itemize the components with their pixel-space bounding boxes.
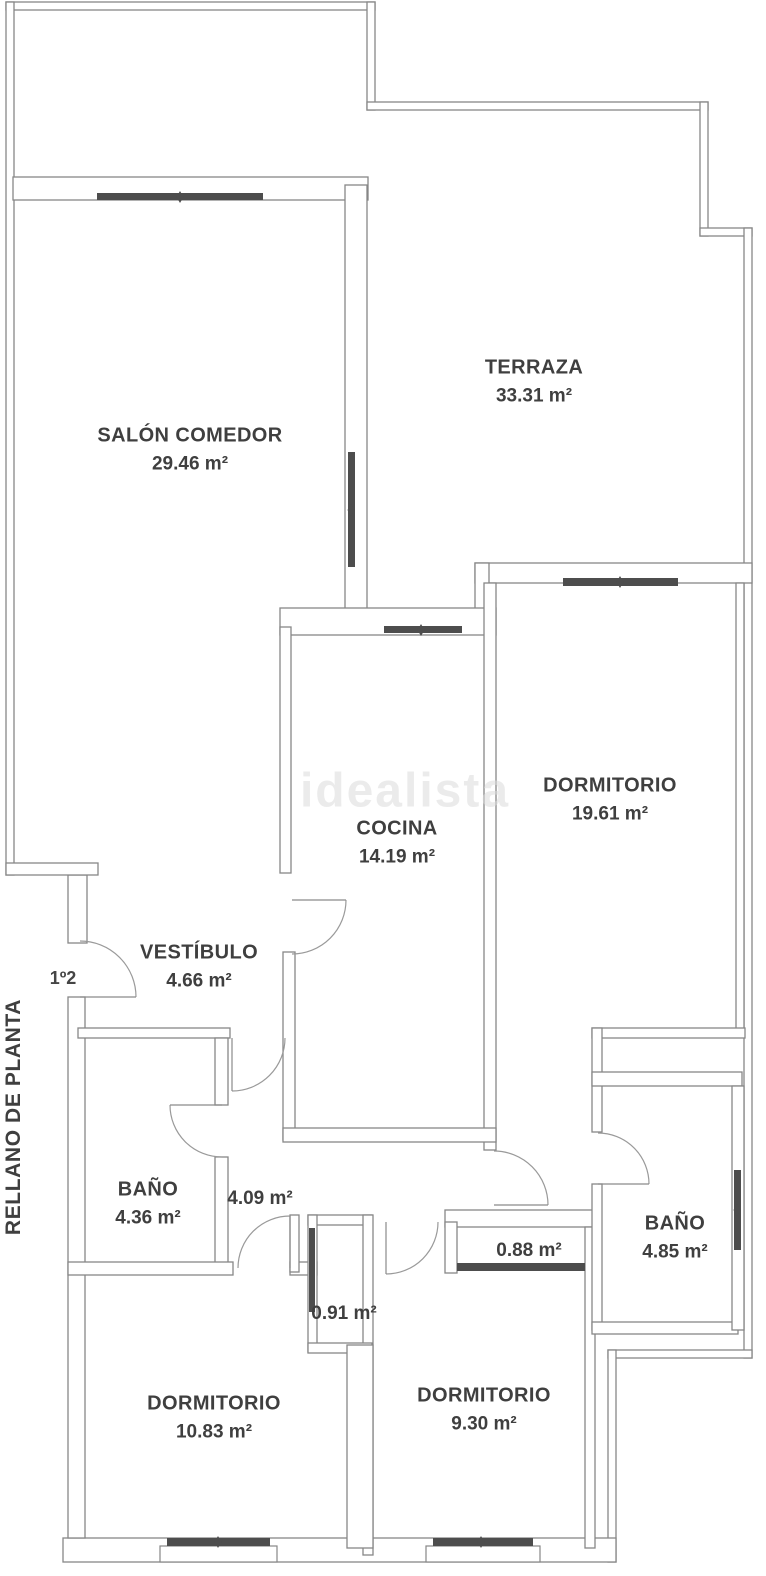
floor-plan: idealista RELLANO DE PLANTA 1º2 SALÓN CO… xyxy=(0,0,766,1576)
room-label-dormitorio-1: DORMITORIO 19.61 m² xyxy=(543,772,677,829)
room-name: DORMITORIO xyxy=(543,772,677,801)
room-name: DORMITORIO xyxy=(417,1382,551,1411)
room-label-salon-comedor: SALÓN COMEDOR 29.46 m² xyxy=(97,422,282,479)
room-area: 29.46 m² xyxy=(97,451,282,479)
room-area: 14.19 m² xyxy=(356,844,437,872)
room-label-pasillo: 4.09 m² xyxy=(227,1185,292,1213)
room-area: 10.83 m² xyxy=(147,1419,281,1447)
room-area: 4.66 m² xyxy=(140,968,258,996)
room-name: BAÑO xyxy=(642,1210,707,1239)
room-label-armario-2: 0.88 m² xyxy=(496,1237,561,1265)
room-name: BAÑO xyxy=(115,1176,180,1205)
room-area: 33.31 m² xyxy=(485,383,583,411)
room-label-dormitorio-2: DORMITORIO 10.83 m² xyxy=(147,1390,281,1447)
room-name: SALÓN COMEDOR xyxy=(97,422,282,451)
entrance-door-label: 1º2 xyxy=(50,965,77,991)
room-label-bano-2: BAÑO 4.85 m² xyxy=(642,1210,707,1267)
room-label-bano-1: BAÑO 4.36 m² xyxy=(115,1176,180,1233)
room-name: TERRAZA xyxy=(485,354,583,383)
room-name: DORMITORIO xyxy=(147,1390,281,1419)
room-label-cocina: COCINA 14.19 m² xyxy=(356,815,437,872)
room-area: 4.36 m² xyxy=(115,1205,180,1233)
room-area: 9.30 m² xyxy=(417,1411,551,1439)
room-label-terraza: TERRAZA 33.31 m² xyxy=(485,354,583,411)
room-name: COCINA xyxy=(356,815,437,844)
room-area: 19.61 m² xyxy=(543,801,677,829)
watermark: idealista xyxy=(300,764,510,819)
room-label-vestibulo: VESTÍBULO 4.66 m² xyxy=(140,939,258,996)
room-area: 4.85 m² xyxy=(642,1239,707,1267)
room-name: VESTÍBULO xyxy=(140,939,258,968)
room-label-dormitorio-3: DORMITORIO 9.30 m² xyxy=(417,1382,551,1439)
landing-label: RELLANO DE PLANTA xyxy=(2,999,26,1235)
room-label-armario-1: 0.91 m² xyxy=(311,1300,376,1328)
